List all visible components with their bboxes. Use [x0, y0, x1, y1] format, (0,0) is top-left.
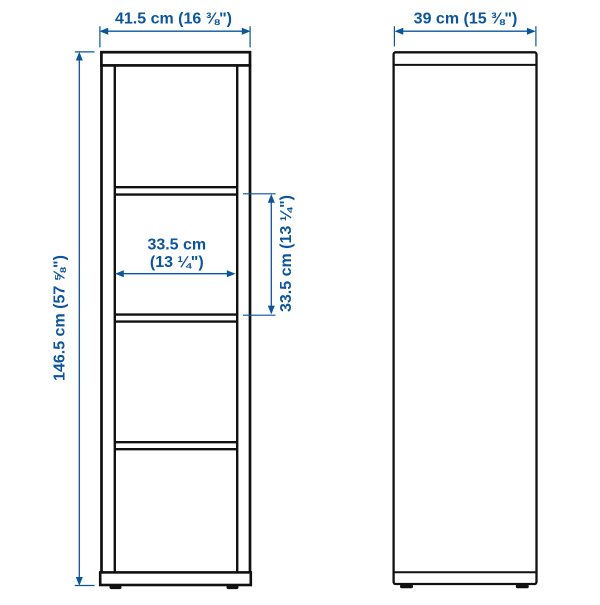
- svg-text:33.5 cm (13 ¼"): 33.5 cm (13 ¼"): [278, 195, 295, 312]
- svg-text:33.5 cm: 33.5 cm: [147, 237, 206, 254]
- svg-text:41.5 cm (16 ⅜"): 41.5 cm (16 ⅜"): [115, 10, 232, 27]
- svg-text:146.5 cm (57 ⅝"): 146.5 cm (57 ⅝"): [52, 255, 69, 381]
- svg-text:(13 ¼"): (13 ¼"): [150, 254, 204, 271]
- svg-text:39 cm (15 ⅜"): 39 cm (15 ⅜"): [414, 10, 518, 27]
